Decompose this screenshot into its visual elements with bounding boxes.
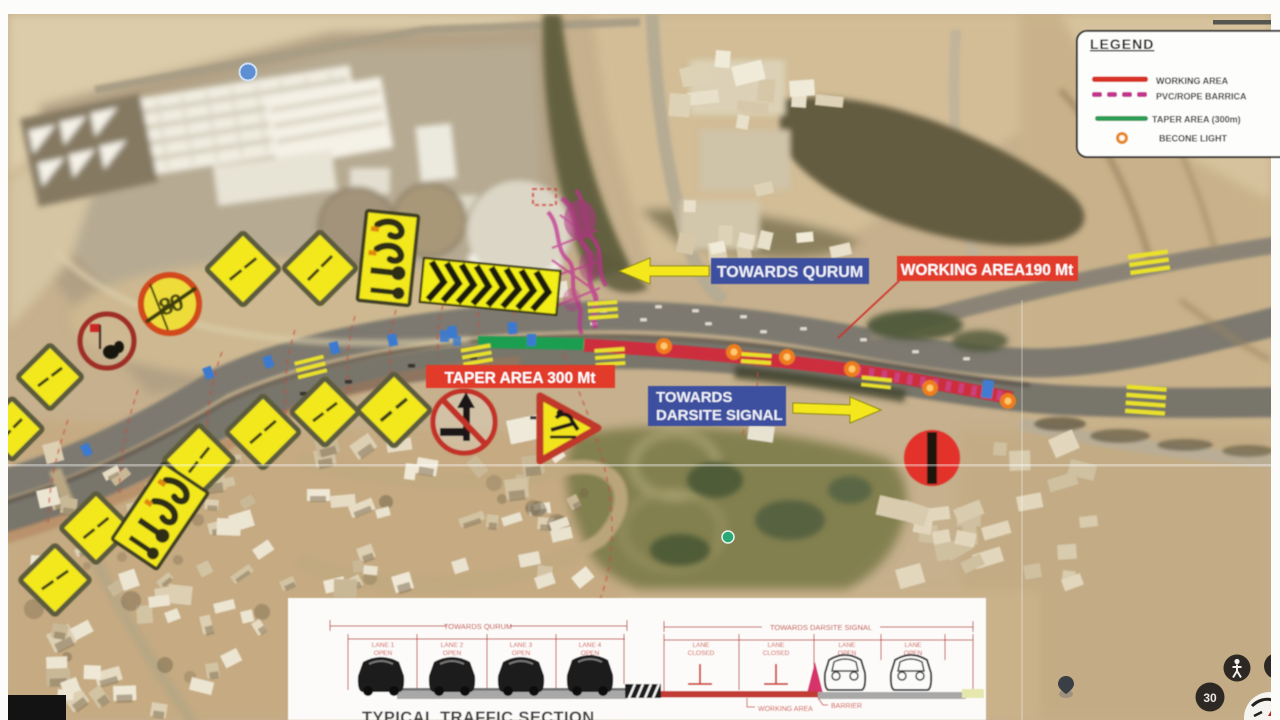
svg-text:TOWARDS QURUM: TOWARDS QURUM [717, 264, 863, 281]
svg-text:LANE: LANE [693, 642, 711, 649]
svg-text:BECONE LIGHT: BECONE LIGHT [1159, 134, 1228, 144]
svg-text:LANE: LANE [839, 642, 857, 649]
svg-text:OPEN: OPEN [443, 650, 462, 657]
svg-text:WORKING AREA190 Mt: WORKING AREA190 Mt [901, 262, 1074, 279]
svg-text:LANE 2: LANE 2 [441, 642, 464, 649]
svg-text:TOWARDS DARSITE SIGNAL: TOWARDS DARSITE SIGNAL [770, 623, 872, 632]
svg-text:BARRIER: BARRIER [831, 703, 862, 710]
svg-text:TOWARDS QURUM: TOWARDS QURUM [444, 622, 512, 631]
svg-text:TAPER AREA 300 Mt: TAPER AREA 300 Mt [444, 370, 595, 387]
svg-text:TAPER AREA (300m): TAPER AREA (300m) [1152, 115, 1241, 125]
svg-text:WORKING AREA: WORKING AREA [758, 706, 813, 713]
svg-text:30: 30 [1203, 691, 1217, 705]
svg-text:LEGEND: LEGEND [1090, 36, 1154, 52]
svg-text:WORKING AREA: WORKING AREA [1156, 76, 1229, 86]
svg-text:CLOSED: CLOSED [763, 650, 790, 657]
svg-text:PVC/ROPE BARRICA: PVC/ROPE BARRICA [1156, 92, 1247, 102]
svg-text:LANE: LANE [905, 642, 923, 649]
svg-text:TOWARDS: TOWARDS [656, 389, 732, 406]
svg-text:LANE 1: LANE 1 [372, 642, 395, 649]
svg-text:LANE 3: LANE 3 [510, 642, 533, 649]
svg-text:LANE: LANE [768, 642, 786, 649]
svg-text:OPEN: OPEN [512, 650, 531, 657]
svg-text:LANE 4: LANE 4 [579, 642, 602, 649]
svg-text:CLOSED: CLOSED [688, 650, 715, 657]
svg-text:OPEN: OPEN [374, 650, 393, 657]
svg-text:TYPICAL TRAFFIC SECTION: TYPICAL TRAFFIC SECTION [362, 709, 595, 720]
svg-text:DARSITE SIGNAL: DARSITE SIGNAL [656, 407, 783, 424]
